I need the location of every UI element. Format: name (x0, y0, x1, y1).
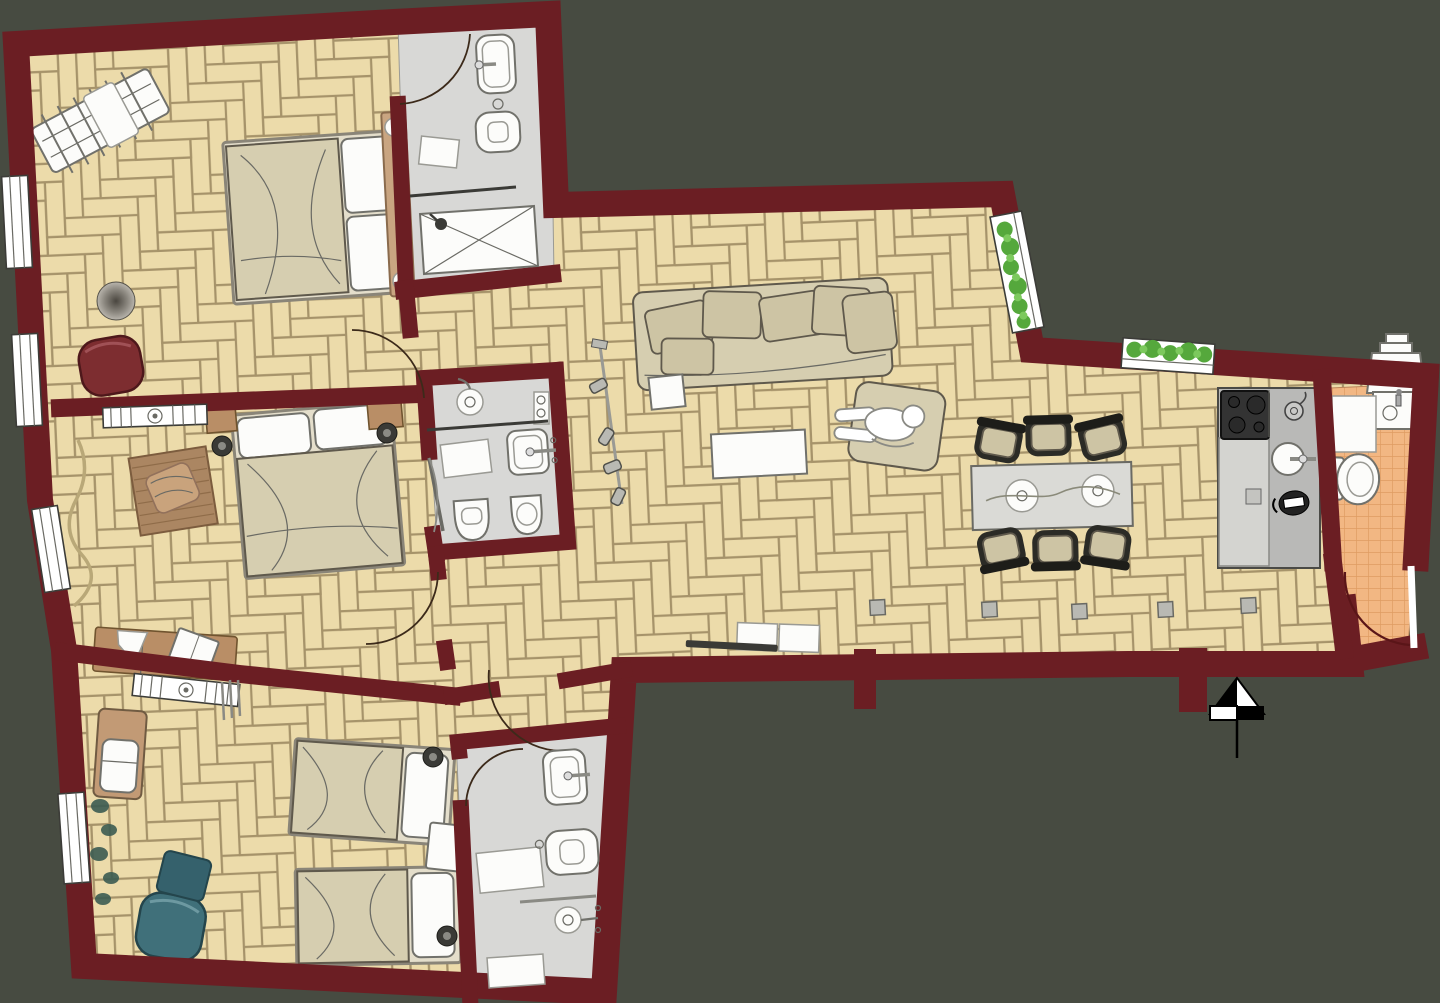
floor-plan-stage (0, 0, 1440, 1003)
sofa-cushion (842, 291, 898, 354)
north-arrow (1210, 678, 1264, 758)
cutting-board (1246, 489, 1261, 504)
entry-door-leaf (1411, 566, 1414, 648)
shelf (534, 392, 549, 424)
sofa-cushion (661, 338, 713, 374)
cooktop (1221, 391, 1269, 439)
window (12, 333, 43, 426)
bath-mat (487, 954, 545, 988)
pillow (236, 413, 311, 459)
window (2, 175, 33, 268)
bath-mat (419, 136, 460, 168)
changing-table (93, 708, 147, 799)
sofa-cushion (702, 291, 761, 339)
bath-mat (440, 439, 492, 478)
corner-washbasin (1373, 389, 1413, 429)
window-plant-box (1121, 338, 1215, 374)
sofa (632, 277, 899, 391)
coffee-table (711, 430, 807, 479)
washbasin (542, 748, 592, 805)
floor-cushion (97, 282, 135, 320)
duvet (237, 445, 403, 576)
single-bed (295, 867, 461, 966)
wc-cabinet (1332, 396, 1376, 452)
duvet (226, 139, 348, 300)
armchair-red (76, 333, 147, 399)
radiator (103, 404, 208, 428)
washbasin (474, 34, 517, 94)
bath-mat (476, 847, 544, 893)
rug-with-blanket (129, 446, 218, 535)
room-kitchen (1218, 388, 1320, 568)
toilet (475, 111, 521, 153)
side-table (648, 374, 685, 409)
window (58, 792, 90, 884)
bidet (511, 495, 544, 535)
dining-set (969, 412, 1136, 575)
floor-plan (0, 0, 1440, 1003)
shower-tray (420, 206, 538, 274)
